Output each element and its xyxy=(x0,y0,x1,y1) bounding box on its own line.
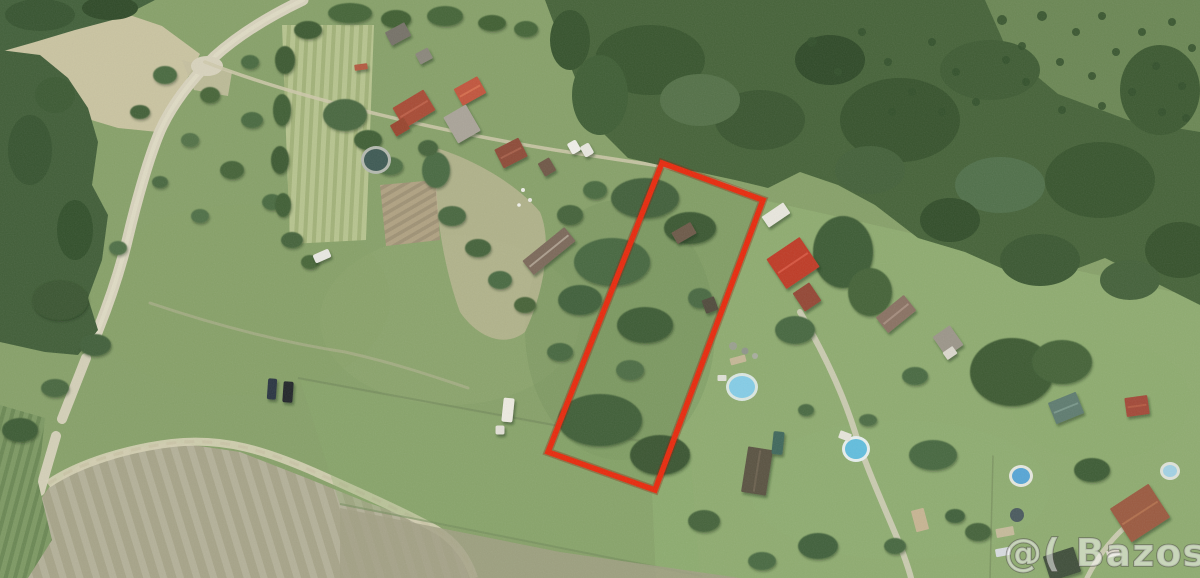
photo-grain xyxy=(0,0,1200,578)
bazos-watermark: @( Bazos.cz xyxy=(1004,531,1200,575)
satellite-image: @( Bazos.cz xyxy=(0,0,1200,578)
listing-photo-stage: @( Bazos.cz xyxy=(0,0,1200,578)
